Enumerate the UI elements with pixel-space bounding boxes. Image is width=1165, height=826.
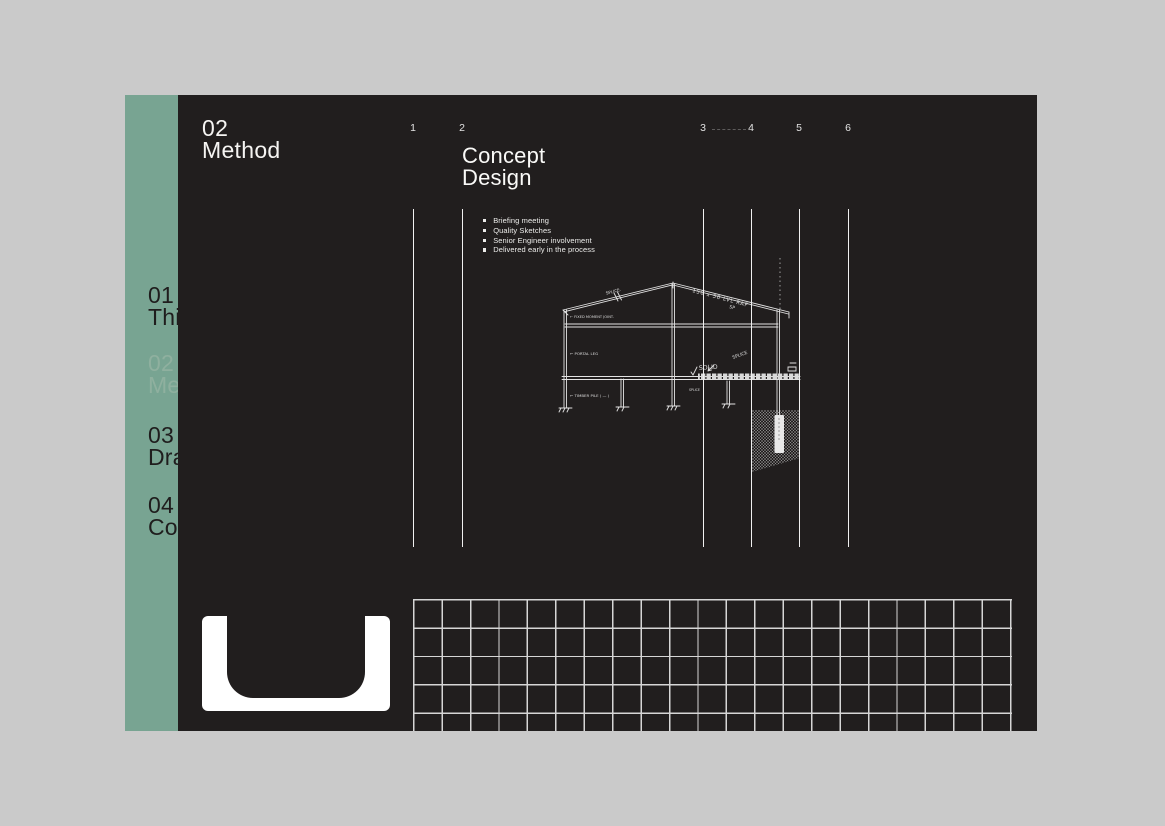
stage-number-3[interactable]: 3 <box>700 122 706 134</box>
annotation-moment-joint: ← FIXED MOMENT JOINT. <box>570 315 614 319</box>
annotation-portal-leg: ← PORTAL LEG <box>570 351 598 356</box>
bullet-list: Briefing meeting Quality Sketches Senior… <box>483 216 595 255</box>
section-title: Method <box>202 139 281 161</box>
stage-number-4[interactable]: 4 <box>748 122 754 134</box>
pile-post-1 <box>616 379 629 411</box>
bullet-text: Briefing meeting <box>493 216 549 226</box>
page-title: Concept Design <box>462 145 545 188</box>
sidebar-item-02-active[interactable]: 02 Me <box>148 353 180 396</box>
bullet-text: Delivered early in the process <box>493 245 595 255</box>
upper-beam <box>565 324 778 327</box>
concept-sketch: SPLICE. 150 x 50 LVL RAF SP ← FIXED MOME… <box>558 255 808 475</box>
annotation-rafter: 150 x 50 LVL RAF <box>691 288 748 309</box>
pile-post-2 <box>722 381 735 408</box>
bullet-square-icon <box>483 248 486 251</box>
stage-number-1[interactable]: 1 <box>410 122 416 134</box>
stage-number-2[interactable]: 2 <box>459 122 465 134</box>
screenshot-root: { "colors": { "canvas_bg": "#cacaca", "s… <box>0 0 1165 826</box>
section-number: 02 <box>202 117 281 139</box>
nav-label: Me <box>148 375 180 397</box>
annotation-solid: SOLID <box>699 364 719 372</box>
slide: 01 Thi 02 Me 03 Dra 04 Co 02 Method 1 2 … <box>125 95 1037 731</box>
annotation-splice-right: SPLICE <box>732 350 749 361</box>
bullet-square-icon <box>483 219 486 222</box>
nav-label: Thi <box>148 307 181 329</box>
bullet-item: Delivered early in the process <box>483 245 595 255</box>
bottom-grid <box>413 599 1012 731</box>
guide-line-4 <box>751 209 752 547</box>
bullet-item: Quality Sketches <box>483 226 595 236</box>
page-title-line1: Concept <box>462 145 545 167</box>
stage-number-6[interactable]: 6 <box>845 122 851 134</box>
bullet-text: Senior Engineer involvement <box>493 236 592 246</box>
page-title-line2: Design <box>462 167 545 189</box>
section-header: 02 Method <box>202 117 281 161</box>
right-column <box>777 310 780 416</box>
guide-line-1 <box>413 209 414 547</box>
u-logo <box>202 616 390 711</box>
bullet-item: Senior Engineer involvement <box>483 236 595 246</box>
annotation-timber-pile: ← TIMBER PILE ( — ) <box>570 393 610 398</box>
guide-line-6 <box>848 209 849 547</box>
guide-line-2 <box>462 209 463 547</box>
sidebar-item-04[interactable]: 04 Co <box>148 495 178 538</box>
ground-hatch <box>752 410 800 472</box>
guide-line-3 <box>703 209 704 547</box>
bullet-square-icon <box>483 239 486 242</box>
guide-line-5 <box>799 209 800 547</box>
annotation-splice-low: SPLICE <box>689 388 700 392</box>
bullet-text: Quality Sketches <box>493 226 551 236</box>
nav-label: Co <box>148 517 178 539</box>
sidebar-item-01[interactable]: 01 Thi <box>148 285 181 328</box>
deck-band <box>698 374 800 380</box>
bullet-item: Briefing meeting <box>483 216 595 226</box>
u-logo-cutout <box>227 616 365 698</box>
stage-dashed-connector <box>712 129 746 130</box>
content-panel: 02 Method 1 2 3 4 5 6 Concept Design Bri… <box>178 95 1037 731</box>
ridge-column <box>667 284 680 410</box>
bullet-square-icon <box>483 229 486 232</box>
stage-number-5[interactable]: 5 <box>796 122 802 134</box>
